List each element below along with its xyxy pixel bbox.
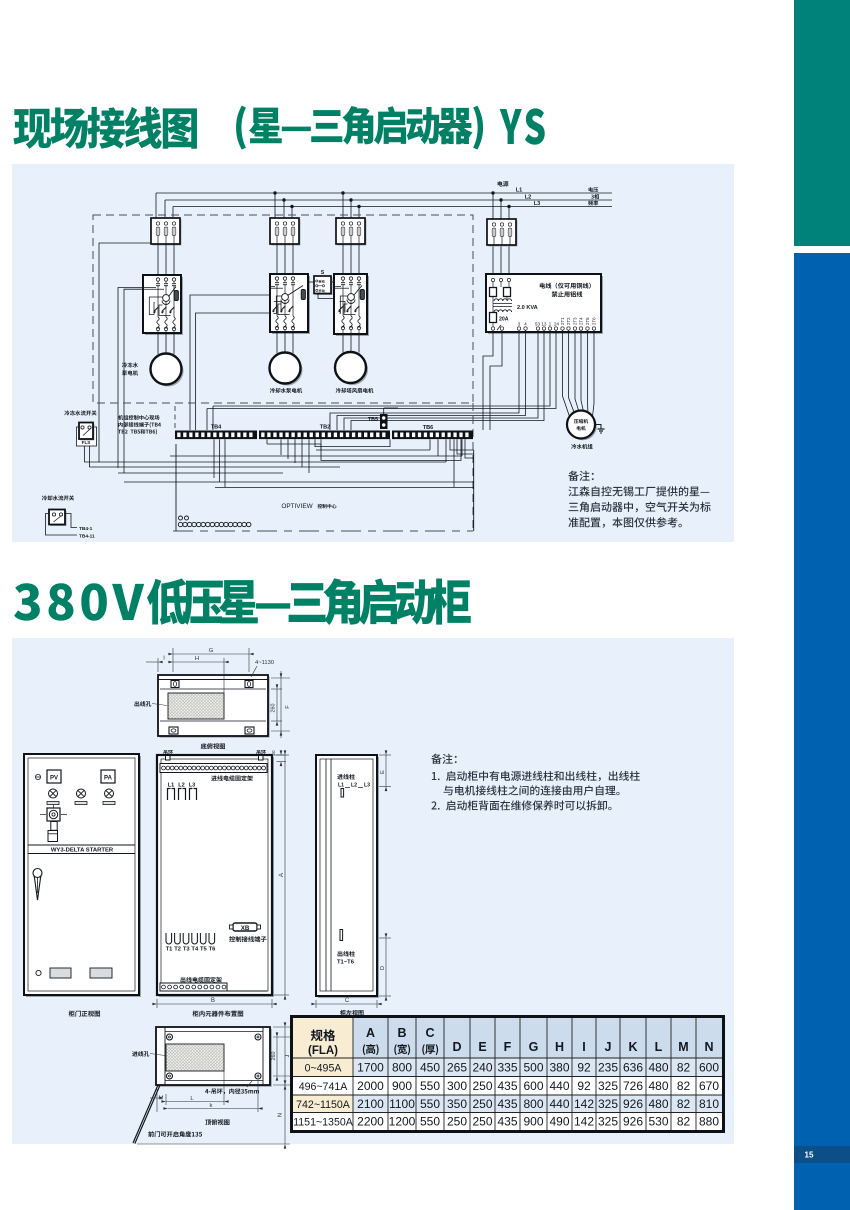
svg-text:810: 810: [699, 1097, 719, 1111]
svg-text:800: 800: [523, 1097, 543, 1111]
svg-text:265: 265: [447, 1060, 467, 1074]
svg-text:TB6: TB6: [423, 425, 434, 431]
svg-text:82: 82: [677, 1079, 691, 1093]
svg-text:L1: L1: [168, 783, 175, 789]
svg-text:325: 325: [598, 1079, 618, 1093]
svg-text:335: 335: [497, 1060, 517, 1074]
svg-text:450: 450: [420, 1060, 440, 1074]
svg-text:670: 670: [699, 1079, 719, 1093]
svg-text:550: 550: [420, 1097, 440, 1111]
svg-text:L3: L3: [189, 783, 196, 789]
svg-text:D: D: [452, 1040, 461, 1054]
svg-text:M: M: [678, 1040, 688, 1054]
svg-text:1100: 1100: [389, 1097, 415, 1111]
svg-text:550: 550: [420, 1114, 440, 1128]
svg-text:(FLA): (FLA): [308, 1045, 338, 1057]
svg-text:50: 50: [271, 750, 276, 756]
svg-text:E: E: [478, 1040, 486, 1054]
svg-text:260: 260: [271, 1052, 277, 1061]
svg-text:T4: T4: [191, 947, 199, 953]
svg-text:1151~1350A: 1151~1350A: [293, 1116, 354, 1128]
svg-text:H: H: [195, 656, 199, 662]
svg-text:TB4: TB4: [211, 425, 222, 431]
svg-text:T1: T1: [166, 947, 174, 953]
svg-text:480: 480: [648, 1097, 668, 1111]
svg-text:FLS: FLS: [82, 440, 91, 445]
svg-text:480: 480: [648, 1079, 668, 1093]
svg-text:A: A: [366, 1026, 375, 1040]
svg-text:2100: 2100: [357, 1097, 384, 1111]
svg-text:435: 435: [497, 1097, 517, 1111]
svg-text:82: 82: [677, 1114, 691, 1128]
svg-text:T6: T6: [209, 947, 217, 953]
svg-text:4~1130: 4~1130: [255, 660, 274, 666]
svg-text:L2: L2: [178, 783, 185, 789]
svg-text:TB2: TB2: [320, 425, 331, 431]
svg-text:490: 490: [549, 1114, 569, 1128]
svg-text:250: 250: [472, 1097, 492, 1111]
svg-text:H: H: [555, 1040, 564, 1054]
svg-text:2T6: 2T6: [592, 317, 597, 325]
svg-text:82: 82: [677, 1060, 691, 1074]
svg-text:260: 260: [271, 704, 277, 713]
svg-text:325: 325: [598, 1114, 618, 1128]
svg-text:L1: L1: [516, 188, 523, 194]
svg-text:440: 440: [549, 1097, 569, 1111]
svg-text:92: 92: [577, 1060, 591, 1074]
svg-text:PV: PV: [50, 776, 58, 782]
svg-text:L2: L2: [525, 195, 532, 201]
svg-text:2T4: 2T4: [579, 317, 584, 325]
svg-text:380: 380: [549, 1060, 569, 1074]
svg-text:N: N: [704, 1040, 713, 1054]
svg-text:B: B: [397, 1026, 406, 1040]
svg-text:L1: L1: [338, 783, 344, 789]
svg-text:C: C: [345, 998, 350, 1004]
svg-text:1700: 1700: [357, 1060, 384, 1074]
svg-text:900: 900: [523, 1114, 543, 1128]
svg-text:82: 82: [677, 1097, 691, 1111]
svg-text:250: 250: [472, 1079, 492, 1093]
svg-text:600: 600: [523, 1079, 543, 1093]
svg-text:M: M: [159, 1096, 164, 1102]
svg-text:880: 880: [699, 1114, 719, 1128]
svg-text:350: 350: [447, 1097, 467, 1111]
svg-text:F: F: [285, 705, 291, 709]
svg-text:235: 235: [598, 1060, 618, 1074]
svg-text:600: 600: [699, 1060, 719, 1074]
svg-text:TB5: TB5: [368, 417, 378, 423]
svg-text:440: 440: [549, 1079, 569, 1093]
svg-text:G: G: [209, 648, 214, 654]
svg-text:TB4-1: TB4-1: [79, 526, 93, 532]
svg-text:250: 250: [472, 1114, 492, 1128]
svg-text:L: L: [655, 1040, 663, 1054]
svg-text:2200: 2200: [357, 1114, 384, 1128]
svg-text:926: 926: [623, 1114, 643, 1128]
svg-text:53: 53: [535, 322, 540, 327]
svg-text:142: 142: [574, 1114, 594, 1128]
svg-text:92: 92: [577, 1079, 591, 1093]
svg-text:142: 142: [574, 1097, 594, 1111]
svg-text:636: 636: [623, 1060, 643, 1074]
svg-text:2T5: 2T5: [585, 317, 590, 325]
svg-text:496~741A: 496~741A: [299, 1081, 349, 1093]
svg-text:550: 550: [420, 1079, 440, 1093]
svg-text:20A: 20A: [499, 317, 509, 323]
svg-text:300: 300: [447, 1079, 467, 1093]
svg-text:2T3: 2T3: [573, 317, 578, 325]
svg-text:2T2: 2T2: [566, 317, 571, 325]
svg-text:L3: L3: [534, 201, 541, 207]
svg-text:WY3-DELTA STARTER: WY3-DELTA STARTER: [51, 848, 114, 854]
svg-text:E: E: [380, 770, 386, 774]
svg-text:250: 250: [447, 1114, 467, 1128]
svg-text:1200: 1200: [389, 1114, 416, 1128]
svg-text:325: 325: [598, 1097, 618, 1111]
svg-text:0~495A: 0~495A: [305, 1062, 343, 1074]
svg-text:J: J: [605, 1040, 612, 1054]
svg-text:900: 900: [392, 1079, 412, 1093]
svg-text:742~1150A: 742~1150A: [296, 1099, 351, 1111]
svg-text:240: 240: [472, 1060, 492, 1074]
svg-text:T1~T6: T1~T6: [337, 960, 355, 966]
svg-text:926: 926: [623, 1097, 643, 1111]
svg-text:L2: L2: [351, 783, 357, 789]
svg-text:F: F: [504, 1040, 512, 1054]
svg-text:2.0 KVA: 2.0 KVA: [517, 305, 538, 311]
svg-text:K: K: [628, 1040, 637, 1054]
svg-text:435: 435: [497, 1114, 517, 1128]
svg-text:T2: T2: [174, 947, 181, 953]
svg-text:480: 480: [648, 1060, 668, 1074]
svg-text:24: 24: [554, 322, 559, 327]
svg-text:PA: PA: [104, 776, 113, 782]
svg-text:726: 726: [623, 1079, 643, 1093]
svg-text:B: B: [211, 997, 215, 1004]
svg-text:S: S: [321, 270, 325, 276]
svg-text:2000: 2000: [357, 1079, 384, 1093]
svg-text:L3: L3: [364, 783, 370, 789]
svg-text:500: 500: [523, 1060, 543, 1074]
svg-text:I: I: [582, 1040, 585, 1054]
svg-text:435: 435: [497, 1079, 517, 1093]
svg-text:G: G: [529, 1040, 539, 1054]
svg-text:k: k: [210, 1103, 213, 1109]
svg-text:OPTIVIEW: OPTIVIEW: [281, 503, 313, 510]
svg-text:T5: T5: [200, 947, 208, 953]
svg-text:2T1: 2T1: [560, 317, 565, 325]
svg-text:XB: XB: [241, 925, 250, 932]
svg-text:C: C: [425, 1026, 434, 1040]
svg-text:T3: T3: [183, 947, 191, 953]
svg-text:D: D: [380, 966, 386, 970]
svg-text:530: 530: [648, 1114, 668, 1128]
svg-text:13: 13: [542, 322, 547, 327]
svg-text:TB4-11: TB4-11: [79, 534, 95, 540]
svg-text:N: N: [278, 1113, 284, 1117]
svg-text:800: 800: [392, 1060, 412, 1074]
svg-text:15: 15: [805, 1151, 814, 1160]
